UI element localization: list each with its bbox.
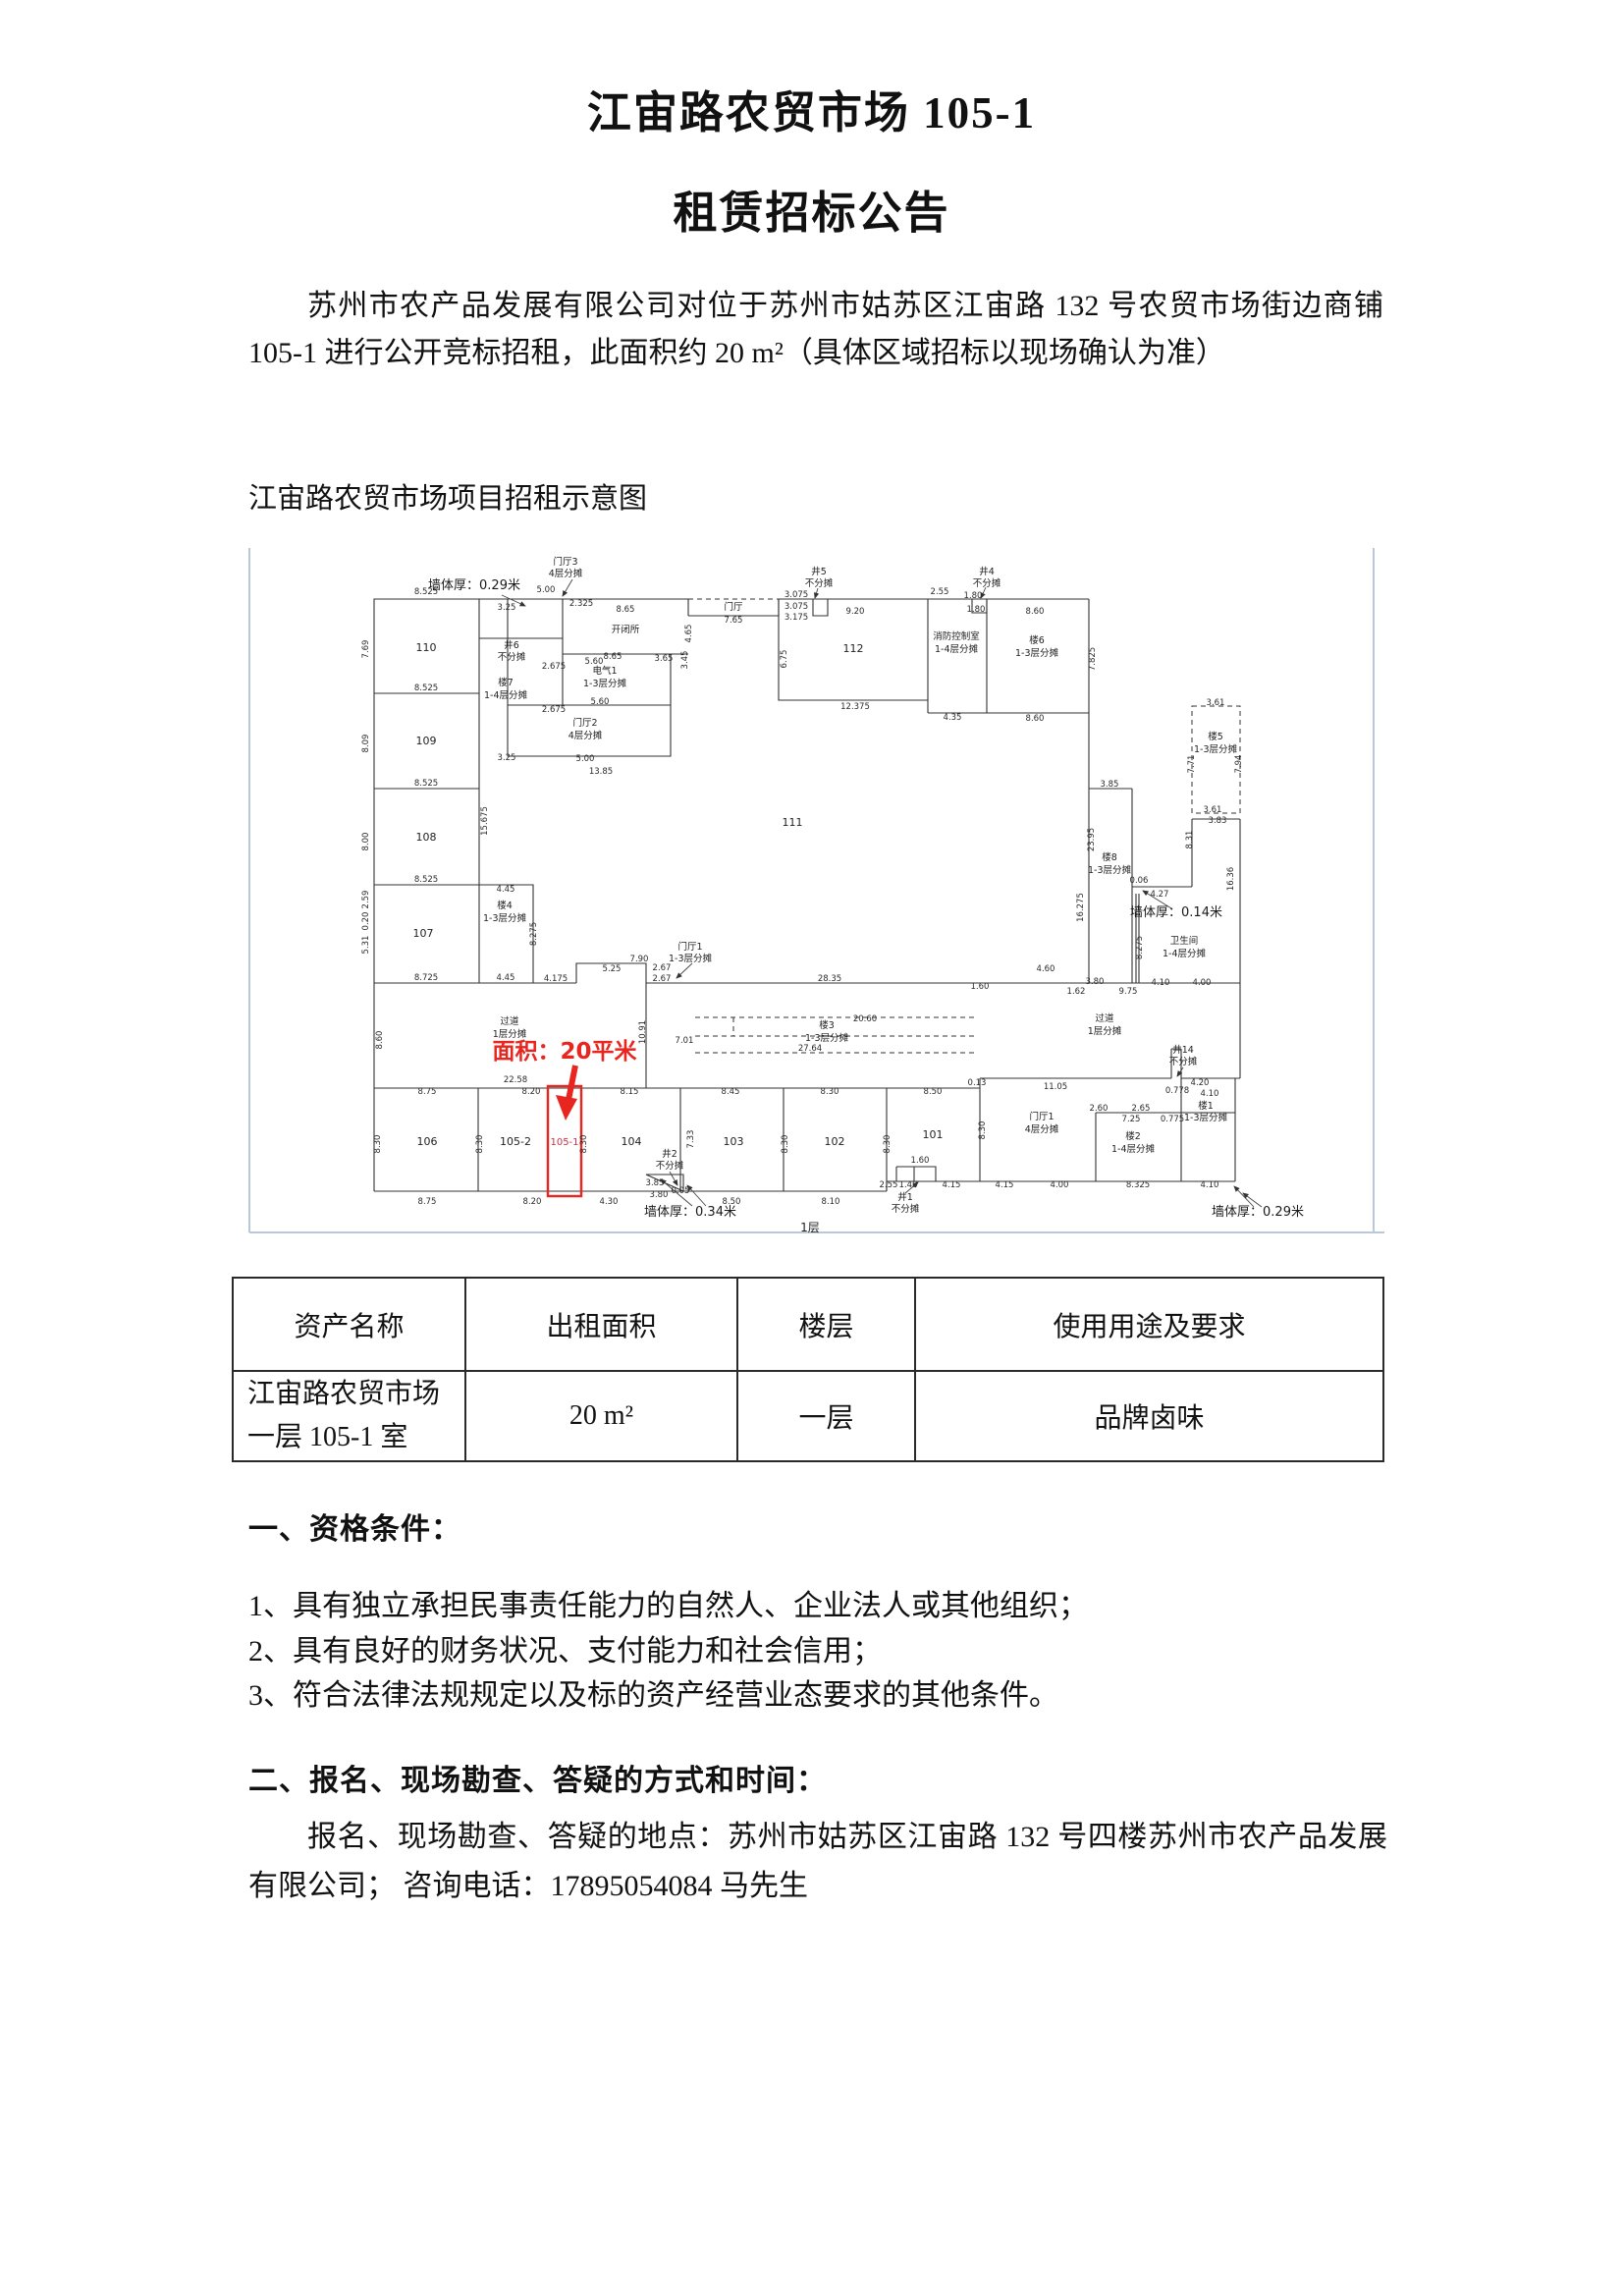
plan-label: 4.65 [684, 625, 694, 643]
table-header-row: 资产名称 出租面积 楼层 使用用途及要求 [233, 1278, 1383, 1371]
plan-label: 10.91 [638, 1020, 648, 1044]
plan-label: 不分摊 [892, 1203, 920, 1215]
plan-label: 4.45 [497, 973, 515, 983]
plan-label: 3.80 [1086, 977, 1105, 987]
wall-line [374, 963, 1089, 983]
plan-label: 4层分摊 [568, 730, 603, 741]
plan-label: 28.35 [818, 974, 841, 984]
plan-label: 0.05 [672, 1186, 690, 1196]
qualification-item-2: 2、具有良好的财务状况、支付能力和社会信用； [248, 1626, 882, 1669]
plan-label: 8.30 [781, 1135, 790, 1154]
plan-label: 1层分摊 [1088, 1025, 1122, 1037]
plan-label: 4.00 [1051, 1180, 1069, 1190]
plan-label: 4.45 [497, 885, 515, 895]
plan-label: 11.05 [1044, 1082, 1067, 1092]
asset-table: 资产名称 出租面积 楼层 使用用途及要求 江宙路农贸市场 一层 105-1 室 … [232, 1277, 1384, 1462]
plan-label: 12.375 [840, 702, 870, 712]
plan-label: 开闭所 [612, 624, 640, 635]
plan-label: 5.00 [576, 754, 595, 764]
plan-label: 8.60 [375, 1031, 385, 1050]
plan-label: 8.525 [414, 683, 438, 693]
plan-label: 1-3层分摊 [483, 912, 527, 924]
plan-label: 8.65 [617, 605, 635, 615]
plan-label: 楼5 [1208, 731, 1223, 742]
plan-label: 7.825 [1088, 647, 1098, 671]
plan-label: 墙体厚：0.14米 [1130, 905, 1222, 920]
plan-label: 8.50 [924, 1087, 943, 1097]
plan-label: 112 [843, 642, 864, 655]
floor-plan-drawing: 墙体厚：0.29米墙体厚：0.14米墙体厚：0.34米墙体厚：0.29米1层面积… [248, 548, 1387, 1245]
plan-label: 4.15 [943, 1180, 961, 1190]
plan-label: 1.60 [911, 1156, 930, 1166]
plan-label: 1-3层分摊 [1015, 647, 1059, 659]
plan-label: 楼3 [819, 1019, 835, 1031]
wall-line [980, 1049, 1240, 1078]
plan-label: 不分摊 [1169, 1056, 1198, 1067]
col-rent-area: 出租面积 [465, 1278, 737, 1371]
plan-label: 8.15 [621, 1087, 639, 1097]
plan-label: 5.31 [361, 936, 371, 955]
plan-label: 1.80 [964, 591, 983, 601]
plan-label: 楼7 [498, 677, 514, 688]
leader-line [563, 579, 572, 596]
plan-label: 8.525 [414, 779, 438, 789]
plan-label: 3.85 [1101, 780, 1119, 790]
plan-label: 3.25 [498, 603, 516, 613]
plan-label: 2.59 [361, 891, 371, 909]
plan-label: 8.31 [1185, 831, 1195, 849]
plan-label: 门厅1 [1029, 1111, 1054, 1122]
plan-label: 2.55 [931, 587, 949, 597]
plan-label: 2.65 [1132, 1104, 1151, 1114]
plan-label: 墙体厚：0.29米 [428, 578, 520, 593]
plan-label: 楼6 [1029, 634, 1045, 646]
plan-label: 7.01 [676, 1036, 694, 1046]
plan-label: 井6 [504, 639, 519, 651]
registration-paragraph: 报名、现场勘查、答疑的地点：苏州市姑苏区江宙路 132 号四楼苏州市农产品发展有… [248, 1813, 1387, 1911]
plan-label: 2.675 [542, 662, 566, 672]
section1-heading: 一、资格条件： [248, 1504, 461, 1548]
plan-label: 7.25 [1122, 1115, 1141, 1124]
plan-label: 1-4层分摊 [935, 643, 979, 655]
plan-label: 4.15 [996, 1180, 1014, 1190]
plan-label: 20.60 [853, 1014, 877, 1024]
plan-label: 0.775 [1161, 1115, 1184, 1124]
plan-label: 8.20 [523, 1197, 542, 1207]
leader-line [676, 963, 692, 978]
plan-label: 4.175 [544, 974, 568, 984]
plan-label: 4.60 [1037, 964, 1055, 974]
plan-label: 101 [923, 1128, 944, 1141]
plan-label: 4.00 [1193, 978, 1212, 988]
col-asset-name: 资产名称 [233, 1278, 465, 1371]
plan-label: 3.175 [784, 613, 808, 623]
plan-label: 1-3层分摊 [1194, 743, 1238, 755]
plan-label: 1层 [800, 1221, 820, 1234]
plan-label: 9.75 [1119, 987, 1138, 997]
plan-label: 3.85 [646, 1178, 665, 1188]
plan-label: 过道 [1095, 1012, 1114, 1024]
plan-label: 8.20 [522, 1087, 541, 1097]
plan-label: 1-3层分摊 [805, 1032, 849, 1044]
floor-plan: 墙体厚：0.29米墙体厚：0.14米墙体厚：0.34米墙体厚：0.29米1层面积… [248, 548, 1387, 1245]
plan-label: 9.20 [846, 607, 865, 617]
plan-label: 0.06 [1130, 876, 1149, 886]
plan-label: 8.30 [475, 1135, 485, 1154]
red-arrow-shaft [568, 1066, 575, 1100]
plan-label: 3.075 [784, 590, 808, 600]
plan-label: 27.64 [798, 1044, 822, 1054]
plan-label: 井5 [811, 566, 827, 577]
plan-label: 井14 [1172, 1044, 1194, 1056]
plan-label: 过道 [500, 1015, 519, 1027]
plan-label: 3.075 [784, 602, 808, 612]
plan-label: 1-4层分摊 [1163, 948, 1207, 959]
plan-label: 110 [416, 641, 437, 654]
plan-label: 8.30 [821, 1087, 839, 1097]
plan-label: 8.30 [579, 1135, 589, 1154]
plan-label: 2.325 [569, 599, 593, 609]
plan-label: 5.00 [537, 585, 556, 595]
plan-label: 墙体厚：0.29米 [1212, 1205, 1304, 1220]
plan-label: 1.62 [1067, 987, 1086, 997]
plan-label: 3.61 [1207, 698, 1225, 708]
plan-label: 1.48 [899, 1180, 918, 1190]
plan-label: 门厅3 [553, 556, 577, 568]
plan-label: 23.95 [1087, 828, 1097, 851]
plan-label: 8.30 [978, 1121, 988, 1140]
plan-label: 卫生间 [1170, 935, 1199, 947]
col-usage: 使用用途及要求 [915, 1278, 1383, 1371]
plan-caption: 江宙路农贸市场项目招租示意图 [248, 475, 647, 517]
plan-label: 1-3层分摊 [1088, 864, 1132, 876]
plan-label: 8.325 [1126, 1180, 1150, 1190]
wall-line [1132, 887, 1192, 983]
plan-label: 8.45 [722, 1087, 740, 1097]
plan-label: 楼2 [1125, 1130, 1141, 1142]
plan-label: 3.45 [680, 651, 690, 670]
leader-line [1177, 1067, 1183, 1076]
wall-line [374, 599, 479, 983]
plan-label: 5.60 [591, 697, 610, 707]
plan-label: 3.61 [1204, 805, 1222, 815]
plan-label: 4.30 [600, 1197, 619, 1207]
plan-label: 1-3层分摊 [583, 678, 627, 689]
plan-label: 8.60 [1026, 714, 1045, 724]
plan-label: 3.80 [650, 1190, 669, 1200]
qualification-item-3: 3、符合法律法规规定以及标的资产经营业态要求的其他条件。 [248, 1670, 1058, 1714]
plan-label: 7.65 [725, 616, 743, 626]
plan-label: 4.10 [1152, 978, 1170, 988]
plan-label: 0.20 [361, 912, 371, 931]
plan-label: 不分摊 [805, 577, 834, 589]
plan-label: 8.75 [418, 1087, 437, 1097]
document-page: { "doc": { "title_line1": "江宙路农贸市场 105-1… [0, 0, 1623, 2296]
plan-label: 8.525 [414, 875, 438, 885]
plan-labels: 墙体厚：0.29米墙体厚：0.14米墙体厚：0.34米墙体厚：0.29米1层面积… [361, 556, 1304, 1234]
plan-label: 不分摊 [973, 577, 1001, 589]
plan-label: 105-1 [550, 1137, 578, 1148]
intro-paragraph: 苏州市农产品发展有限公司对位于苏州市姑苏区江宙路 132 号农贸市场街边商铺 1… [248, 283, 1383, 377]
plan-label: 5.60 [585, 657, 604, 667]
plan-label: 2.67 [653, 974, 672, 984]
cell-rent-area: 20 m² [465, 1371, 737, 1461]
plan-label: 7.90 [630, 955, 649, 964]
wall-line [980, 1078, 1235, 1181]
plan-label: 102 [825, 1135, 845, 1148]
plan-label: 1.80 [967, 605, 986, 615]
wall-line [1089, 789, 1132, 983]
plan-label: 1-3层分摊 [1184, 1112, 1228, 1123]
plan-label: 4.10 [1201, 1180, 1219, 1190]
plan-label: 门厅2 [572, 717, 597, 729]
page-title: 江宙路农贸市场 105-1 [0, 77, 1623, 140]
wall-line [813, 599, 828, 616]
cell-floor: 一层 [737, 1371, 915, 1461]
red-arrow-head [556, 1095, 577, 1121]
plan-label: 104 [622, 1135, 642, 1148]
plan-label: 4层分摊 [549, 568, 583, 579]
plan-label: 4.35 [944, 713, 962, 723]
plan-label: 8.50 [723, 1197, 741, 1207]
plan-label: 井2 [662, 1148, 677, 1160]
plan-label: 22.58 [504, 1075, 527, 1085]
plan-label: 门厅1 [677, 941, 702, 953]
plan-label: 门厅 [724, 601, 743, 613]
plan-label: 4.20 [1191, 1078, 1210, 1088]
table-row: 江宙路农贸市场 一层 105-1 室 20 m² 一层 品牌卤味 [233, 1371, 1383, 1461]
cell-asset-name: 江宙路农贸市场 一层 105-1 室 [233, 1371, 465, 1461]
plan-label: 15.675 [480, 806, 490, 836]
plan-label: 8.75 [418, 1197, 437, 1207]
plan-label: 3.83 [1209, 816, 1227, 826]
plan-label: 106 [417, 1135, 438, 1148]
plan-label: 不分摊 [498, 651, 526, 663]
plan-label: 109 [416, 735, 437, 747]
plan-label: 8.30 [883, 1135, 893, 1154]
plan-label: 面积：20平米 [492, 1039, 637, 1065]
plan-label: 8.09 [361, 735, 371, 753]
plan-label: 7.71 [1187, 755, 1197, 774]
plan-label: 1-4层分摊 [1111, 1143, 1156, 1155]
plan-label: 107 [413, 927, 434, 940]
plan-label: 井1 [897, 1191, 913, 1203]
plan-label: 8.30 [373, 1135, 383, 1154]
plan-label: 8.275 [529, 922, 539, 946]
leader-line [670, 1172, 677, 1185]
plan-label: 6.75 [780, 650, 789, 669]
plan-label: 7.94 [1234, 755, 1244, 774]
plan-label: 8.65 [604, 652, 622, 662]
plan-label: 1.60 [971, 982, 990, 992]
leader-line [1234, 1186, 1254, 1207]
plan-label: 不分摊 [656, 1160, 684, 1172]
wall-line [896, 1167, 936, 1181]
plan-label: 108 [416, 831, 437, 844]
page-subtitle: 租赁招标公告 [0, 177, 1623, 241]
plan-label: 楼8 [1102, 851, 1117, 863]
plan-label: 8.725 [414, 973, 438, 983]
plan-label: 1层分摊 [493, 1028, 527, 1040]
qualification-item-1: 1、具有独立承担民事责任能力的自然人、企业法人或其他组织； [248, 1581, 1088, 1624]
plan-label: 8.10 [822, 1197, 840, 1207]
plan-label: 3.65 [655, 654, 674, 664]
plan-label: 7.33 [686, 1130, 696, 1149]
plan-label: 13.85 [589, 767, 613, 777]
plan-label: 8.00 [361, 833, 371, 851]
plan-label: 2.55 [880, 1180, 898, 1190]
plan-label: 8.275 [1135, 936, 1145, 959]
leader-line [815, 588, 818, 598]
wall-line [479, 885, 533, 983]
plan-label: 1-3层分摊 [669, 953, 713, 964]
plan-label: 3.25 [498, 753, 516, 763]
col-floor: 楼层 [737, 1278, 915, 1371]
plan-label: 楼4 [497, 900, 513, 911]
cell-usage: 品牌卤味 [915, 1371, 1383, 1461]
plan-label: 4.27 [1151, 890, 1169, 900]
plan-label: 8.525 [414, 587, 438, 597]
highlight-room-105-1 [548, 1066, 581, 1196]
plan-label: 16.36 [1226, 867, 1236, 891]
plan-label: 16.275 [1076, 893, 1086, 922]
plan-label: 0.778 [1165, 1086, 1189, 1096]
plan-label: 墙体厚：0.34米 [644, 1205, 736, 1220]
plan-label: 105-2 [500, 1135, 531, 1148]
section2-heading: 二、报名、现场勘查、答疑的方式和时间： [248, 1756, 827, 1799]
plan-label: 2.675 [542, 705, 566, 715]
plan-label: 井4 [979, 566, 995, 577]
leader-line [687, 1185, 706, 1206]
plan-label: 7.69 [361, 640, 371, 659]
plan-label: 2.60 [1090, 1104, 1109, 1114]
plan-label: 0.13 [968, 1078, 987, 1088]
plan-label: 111 [783, 816, 803, 829]
plan-label: 消防控制室 [933, 630, 980, 642]
plan-label: 4.10 [1201, 1089, 1219, 1099]
plan-label: 103 [724, 1135, 744, 1148]
plan-label: 5.25 [603, 964, 622, 974]
plan-label: 8.60 [1026, 607, 1045, 617]
plan-label: 4层分摊 [1025, 1123, 1059, 1135]
plan-label: 2.67 [653, 963, 672, 973]
plan-label: 楼1 [1198, 1100, 1214, 1112]
wall-line [1192, 706, 1240, 813]
plan-label: 1-4层分摊 [484, 689, 528, 701]
wall-line [374, 693, 479, 885]
